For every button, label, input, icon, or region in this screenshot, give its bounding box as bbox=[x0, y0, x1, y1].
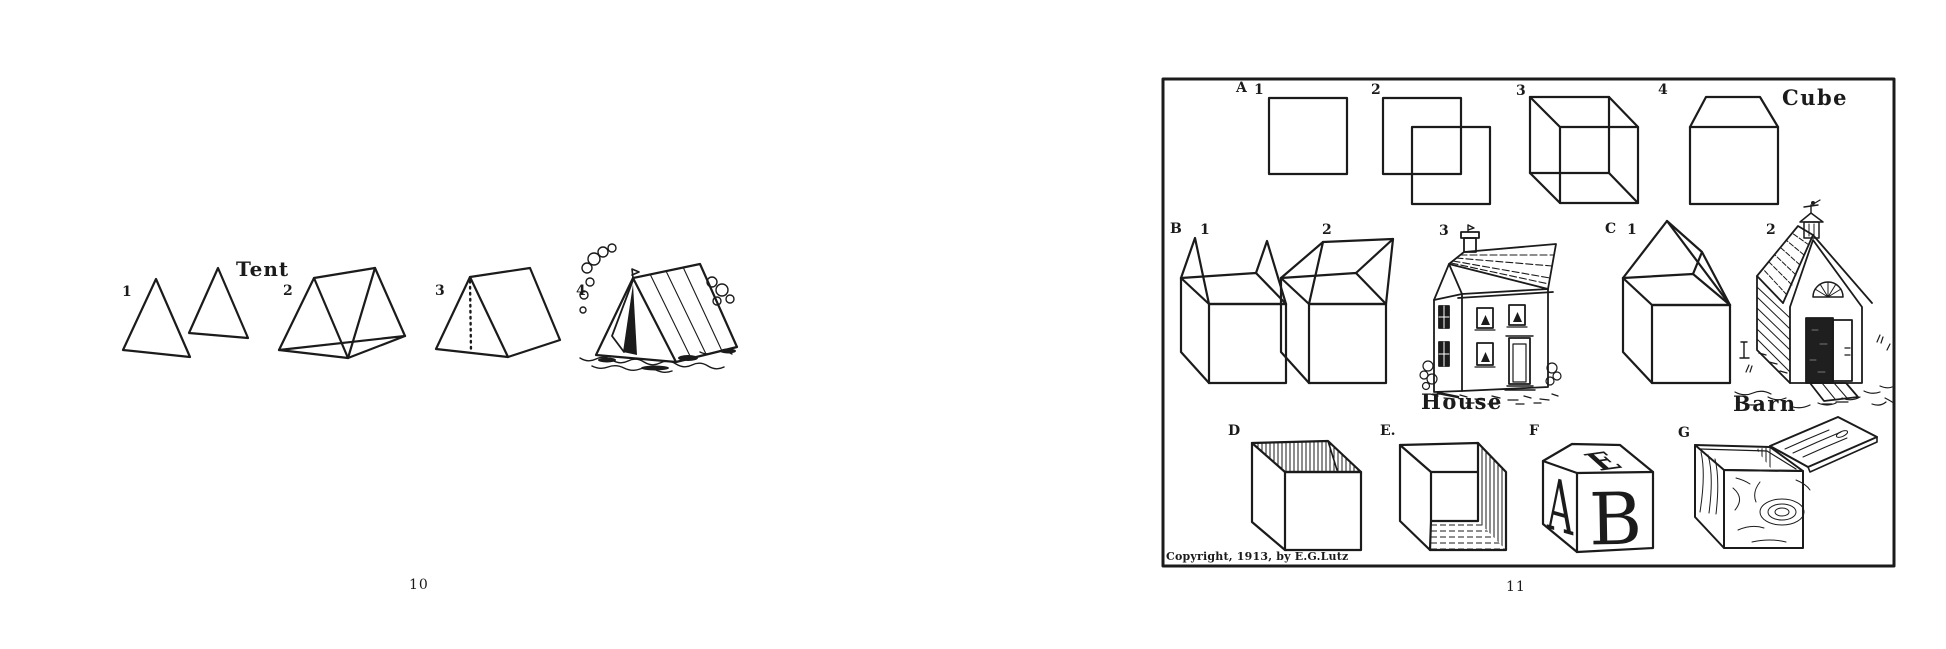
row-c-letter: C bbox=[1605, 221, 1616, 237]
block-letter-top: E bbox=[1576, 446, 1630, 476]
cube-caption: Cube bbox=[1782, 85, 1848, 110]
tent-step-number-3: 3 bbox=[435, 283, 445, 299]
cube-step-number-4: 4 bbox=[1658, 82, 1668, 98]
barn-step-number-2: 2 bbox=[1766, 222, 1776, 238]
house-step-1 bbox=[1181, 238, 1286, 383]
panel-frame bbox=[1163, 79, 1894, 566]
cube-step-3 bbox=[1530, 97, 1638, 203]
barn-caption: Barn bbox=[1733, 391, 1797, 416]
box-hollow-e bbox=[1400, 443, 1506, 550]
tent-step-1 bbox=[123, 268, 248, 357]
house-caption: House bbox=[1421, 389, 1503, 414]
bottom-label-d: D bbox=[1228, 423, 1240, 439]
left-page-number: 10 bbox=[409, 577, 429, 593]
house-step-number-1: 1 bbox=[1200, 222, 1210, 238]
house-step-number-3: 3 bbox=[1439, 223, 1449, 239]
barn-step-number-1: 1 bbox=[1627, 222, 1637, 238]
box-open-d bbox=[1252, 441, 1361, 550]
tent-caption: Tent bbox=[236, 257, 289, 281]
house-step-number-2: 2 bbox=[1322, 222, 1332, 238]
barn-step-1 bbox=[1623, 221, 1730, 383]
cube-step-number-1: 1 bbox=[1254, 82, 1264, 98]
barn-step-2 bbox=[1735, 200, 1895, 408]
book-spread: E A B bbox=[0, 0, 1946, 649]
tent-step-3 bbox=[436, 268, 560, 357]
tent-step-number-4: 4 bbox=[576, 283, 586, 299]
bottom-label-e: E. bbox=[1380, 423, 1396, 439]
cube-step-2 bbox=[1383, 98, 1490, 204]
right-page-number: 11 bbox=[1506, 579, 1526, 595]
copyright-notice: Copyright, 1913, by E.G.Lutz bbox=[1166, 550, 1348, 563]
row-b-letter: B bbox=[1170, 221, 1182, 237]
wooden-box-g bbox=[1695, 417, 1877, 548]
house-step-2 bbox=[1281, 239, 1393, 383]
block-letter-front: B bbox=[1588, 477, 1642, 562]
bottom-label-f: F bbox=[1529, 423, 1539, 439]
cube-step-4 bbox=[1690, 97, 1778, 204]
house-step-3 bbox=[1420, 225, 1561, 404]
cube-step-1 bbox=[1269, 98, 1347, 174]
block-letter-left: A bbox=[1546, 461, 1573, 553]
bottom-label-g: G bbox=[1678, 425, 1690, 441]
tent-step-4 bbox=[580, 244, 737, 372]
alphabet-block-f: E A B bbox=[1543, 444, 1653, 561]
tent-step-number-1: 1 bbox=[122, 284, 132, 300]
cube-step-number-2: 2 bbox=[1371, 82, 1381, 98]
tent-step-2 bbox=[279, 268, 405, 358]
row-a-letter: A bbox=[1236, 80, 1247, 96]
cube-step-number-3: 3 bbox=[1516, 83, 1526, 99]
tent-step-number-2: 2 bbox=[283, 283, 293, 299]
drawing-layer: E A B bbox=[0, 0, 1946, 649]
